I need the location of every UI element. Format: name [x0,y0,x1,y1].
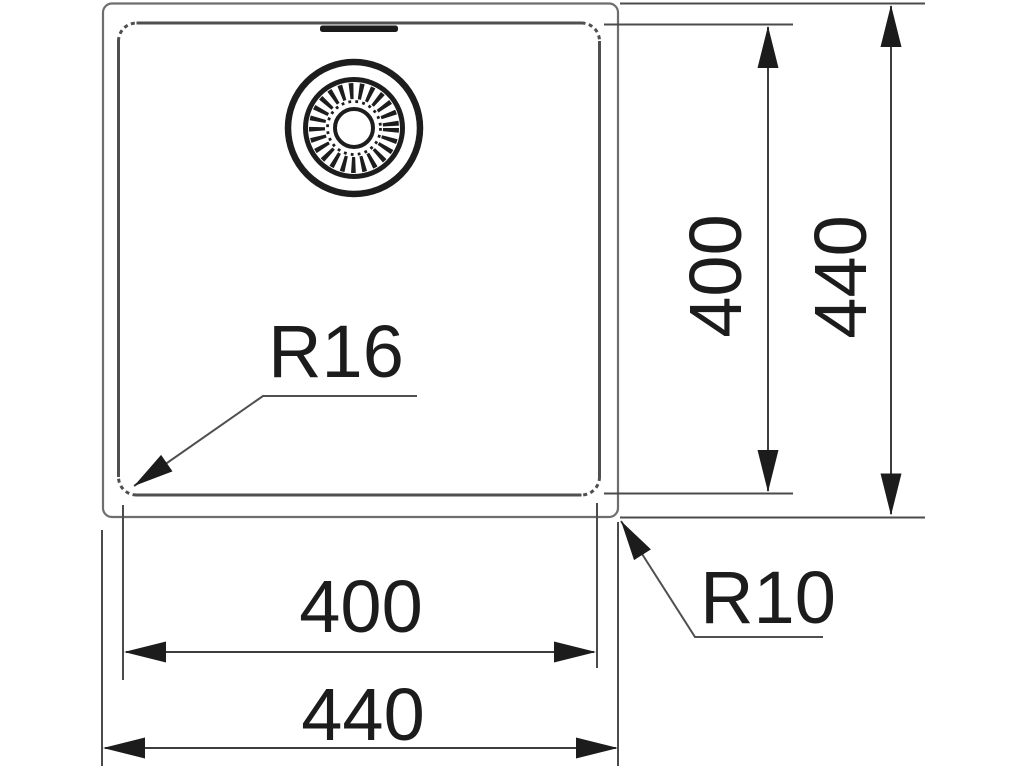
arrowhead-corner-icon [128,455,172,494]
dimension-bowl-height: 400 [604,25,793,494]
arrowhead-left-icon [124,642,166,663]
arrowhead-right-icon [576,738,618,759]
dimension-bowl-width: 400 [123,503,597,680]
outer-width-label: 440 [301,673,424,756]
arrowhead-up-icon [758,26,779,68]
drain-center-hole [335,109,373,147]
sink-dimension-drawing: 400 440 400 440 [0,0,1024,768]
dimension-outer-height: 440 [620,4,925,518]
arrowhead-right-icon [554,642,596,663]
drawing-canvas: 400 440 400 440 [0,0,1024,768]
callout-outer-corner-radius: R10 [613,516,836,639]
outer-corner-radius-label: R10 [700,556,836,639]
arrowhead-down-icon [881,474,902,516]
bowl-corner-radius-label: R16 [268,310,404,393]
sink-outline-group [103,4,618,518]
arrowhead-up-icon [881,5,902,47]
bowl-corner-arc-top-right [582,23,600,41]
bowl-width-label: 400 [299,565,422,648]
bowl-corner-arc-bottom-left [119,477,137,495]
outer-height-label: 440 [799,215,882,338]
leader-line [134,396,417,486]
drain-strainer-icon [288,62,420,194]
arrowhead-left-icon [103,738,145,759]
bowl-corner-arc-top-left [119,23,137,41]
bowl-corner-arc-bottom-right [582,477,600,495]
arrowhead-down-icon [758,450,779,492]
callout-bowl-corner-radius: R16 [128,310,417,494]
overflow-slot [320,26,398,33]
bowl-height-label: 400 [674,214,757,337]
